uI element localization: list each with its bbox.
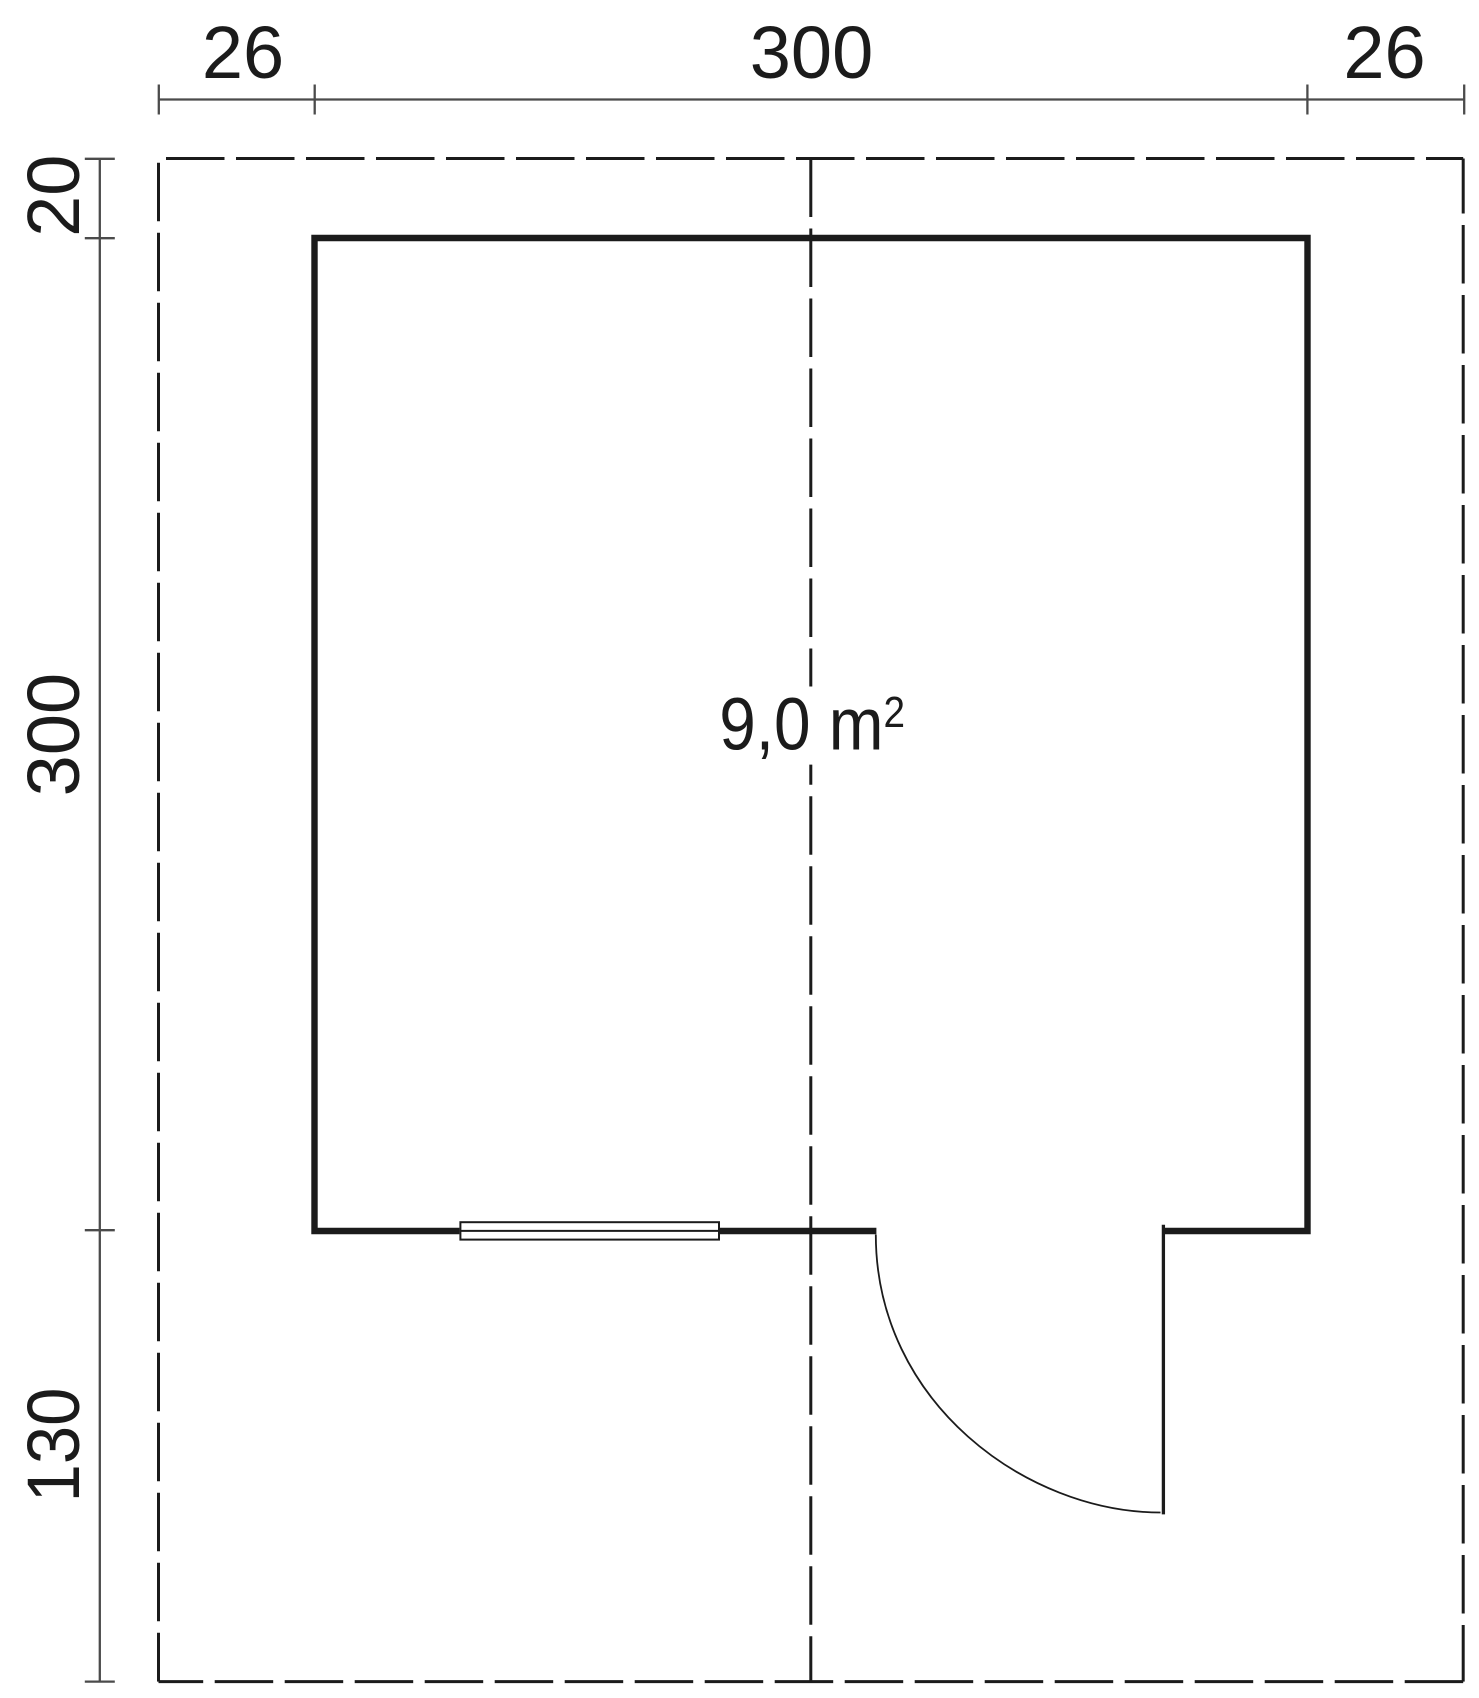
svg-text:20: 20	[12, 155, 95, 237]
svg-text:26: 26	[1343, 11, 1425, 94]
svg-text:300: 300	[750, 11, 873, 94]
svg-text:9,0 m: 9,0 m	[719, 683, 883, 765]
svg-text:300: 300	[12, 673, 95, 796]
svg-text:130: 130	[13, 1388, 96, 1503]
svg-text:26: 26	[202, 11, 284, 94]
svg-text:2: 2	[884, 688, 906, 737]
